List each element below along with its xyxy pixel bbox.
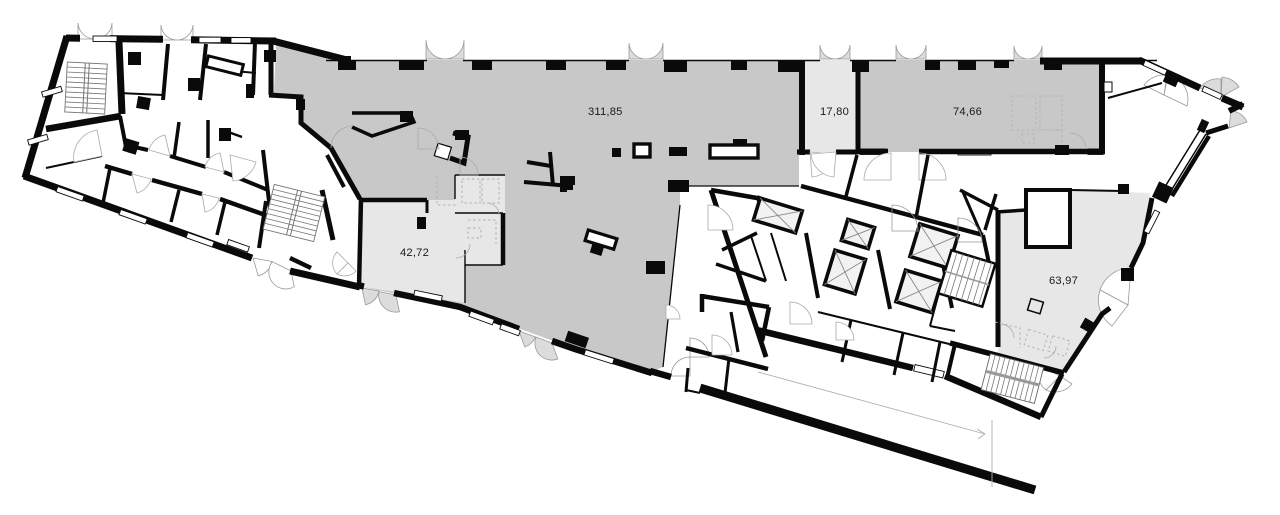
svg-text:42,72: 42,72 xyxy=(400,247,429,259)
svg-text:74,66: 74,66 xyxy=(953,106,982,118)
svg-text:63,97: 63,97 xyxy=(1049,275,1078,287)
svg-text:311,85: 311,85 xyxy=(588,106,623,118)
svg-text:17,80: 17,80 xyxy=(820,106,849,118)
